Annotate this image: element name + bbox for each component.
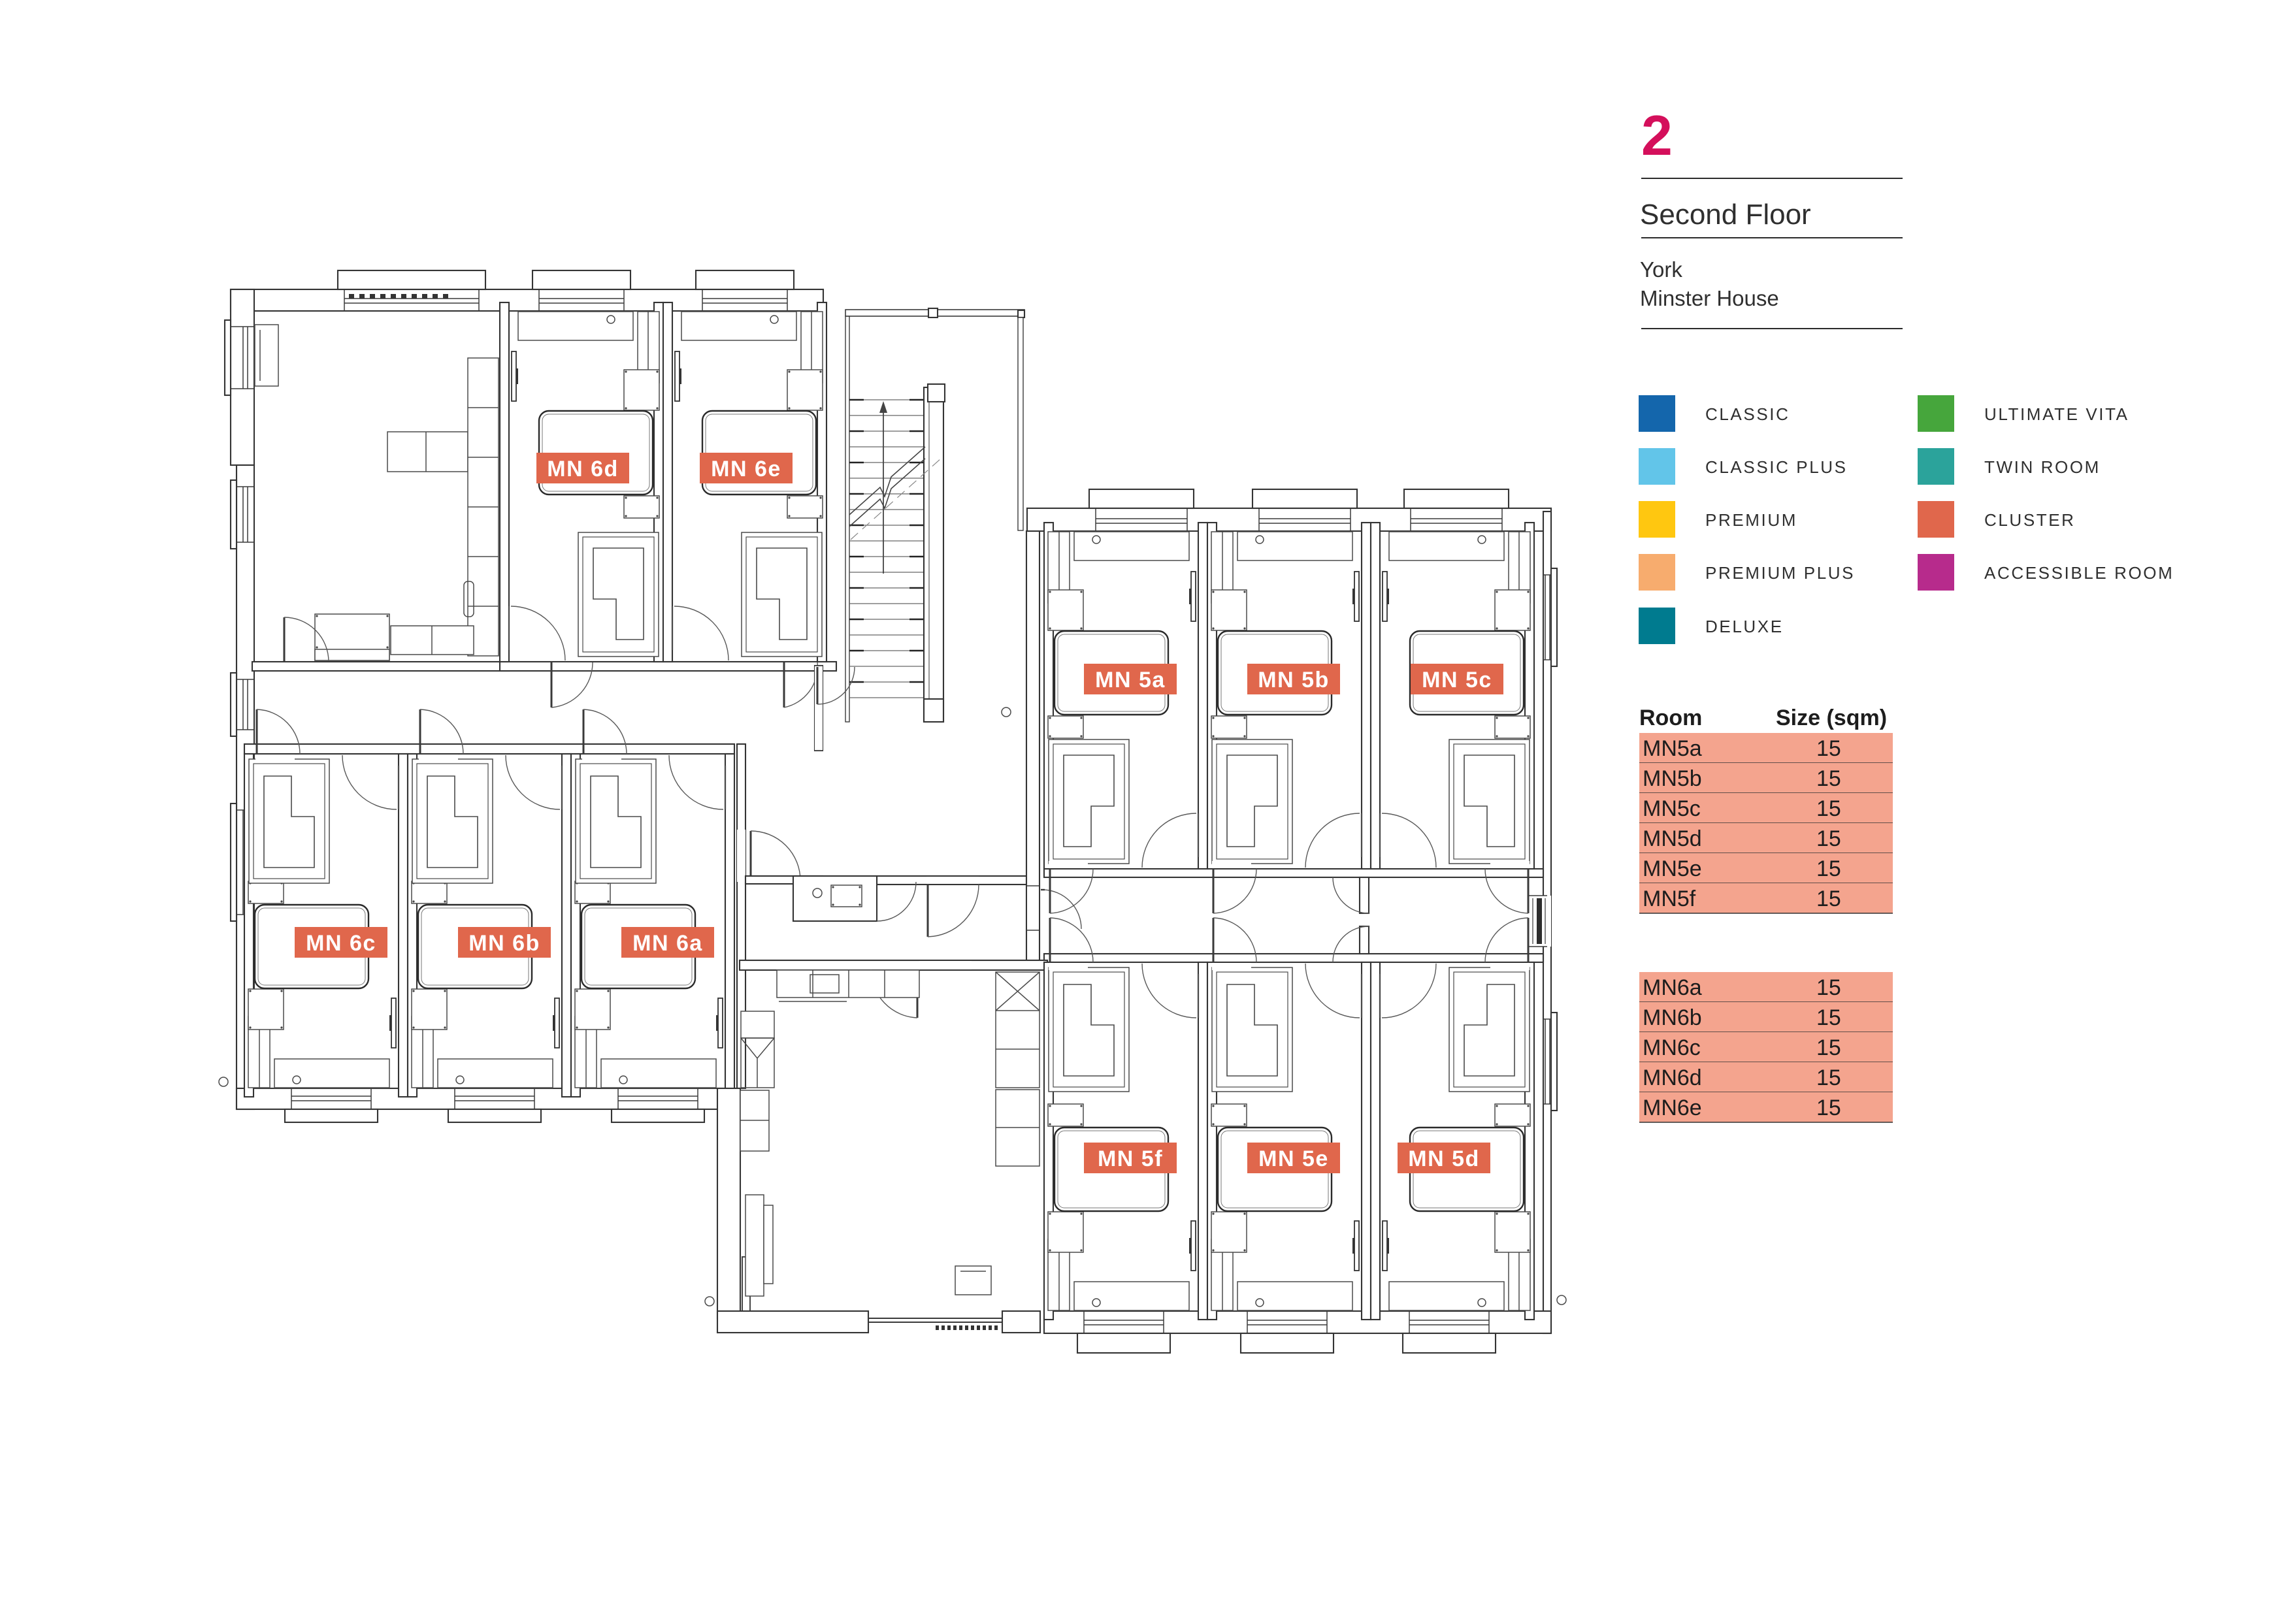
svg-text:15: 15 bbox=[1816, 1005, 1841, 1030]
svg-text:PREMIUM PLUS: PREMIUM PLUS bbox=[1705, 563, 1855, 583]
svg-text:York: York bbox=[1640, 257, 1682, 282]
svg-text:MN5d: MN5d bbox=[1643, 826, 1702, 851]
svg-text:2: 2 bbox=[1641, 105, 1673, 167]
svg-text:15: 15 bbox=[1816, 766, 1841, 791]
svg-text:MN6e: MN6e bbox=[1643, 1096, 1702, 1120]
svg-text:CLASSIC: CLASSIC bbox=[1705, 404, 1790, 424]
svg-text:MN 6d: MN 6d bbox=[547, 457, 619, 481]
svg-text:CLASSIC PLUS: CLASSIC PLUS bbox=[1705, 457, 1848, 477]
svg-text:MN5a: MN5a bbox=[1643, 736, 1702, 761]
svg-text:MN 6a: MN 6a bbox=[632, 931, 703, 956]
svg-text:15: 15 bbox=[1816, 856, 1841, 881]
svg-text:MN 5c: MN 5c bbox=[1422, 668, 1492, 692]
svg-text:MN6c: MN6c bbox=[1643, 1035, 1701, 1060]
svg-text:MN5b: MN5b bbox=[1643, 766, 1702, 791]
svg-text:MN 5f: MN 5f bbox=[1098, 1146, 1163, 1171]
svg-text:CLUSTER: CLUSTER bbox=[1984, 510, 2076, 530]
svg-text:DELUXE: DELUXE bbox=[1705, 617, 1784, 636]
svg-text:PREMIUM: PREMIUM bbox=[1705, 510, 1797, 530]
svg-text:15: 15 bbox=[1816, 1035, 1841, 1060]
svg-text:Second Floor: Second Floor bbox=[1640, 199, 1811, 231]
svg-text:MN6d: MN6d bbox=[1643, 1065, 1702, 1090]
svg-text:MN 5b: MN 5b bbox=[1258, 668, 1330, 692]
svg-text:Size (sqm): Size (sqm) bbox=[1776, 706, 1887, 730]
svg-text:MN 5e: MN 5e bbox=[1258, 1146, 1329, 1171]
svg-text:TWIN ROOM: TWIN ROOM bbox=[1984, 457, 2101, 477]
svg-text:15: 15 bbox=[1816, 826, 1841, 851]
svg-text:MN5e: MN5e bbox=[1643, 856, 1702, 881]
svg-text:15: 15 bbox=[1816, 796, 1841, 821]
svg-text:MN 5d: MN 5d bbox=[1408, 1146, 1480, 1171]
svg-text:Minster House: Minster House bbox=[1640, 286, 1779, 310]
svg-text:ACCESSIBLE ROOM: ACCESSIBLE ROOM bbox=[1984, 563, 2174, 583]
svg-text:Room: Room bbox=[1639, 706, 1702, 730]
svg-text:MN6b: MN6b bbox=[1643, 1005, 1702, 1030]
svg-text:MN5f: MN5f bbox=[1643, 886, 1696, 911]
svg-text:15: 15 bbox=[1816, 1065, 1841, 1090]
svg-text:15: 15 bbox=[1816, 975, 1841, 1000]
svg-text:MN6a: MN6a bbox=[1643, 975, 1702, 1000]
svg-text:MN5c: MN5c bbox=[1643, 796, 1701, 821]
svg-text:15: 15 bbox=[1816, 736, 1841, 761]
svg-text:MN 6e: MN 6e bbox=[711, 457, 781, 481]
svg-text:15: 15 bbox=[1816, 1096, 1841, 1120]
svg-text:ULTIMATE VITA: ULTIMATE VITA bbox=[1984, 404, 2129, 424]
svg-text:MN 5a: MN 5a bbox=[1095, 668, 1166, 692]
svg-text:MN 6b: MN 6b bbox=[468, 931, 540, 956]
svg-text:15: 15 bbox=[1816, 886, 1841, 911]
svg-text:MN 6c: MN 6c bbox=[306, 931, 376, 956]
